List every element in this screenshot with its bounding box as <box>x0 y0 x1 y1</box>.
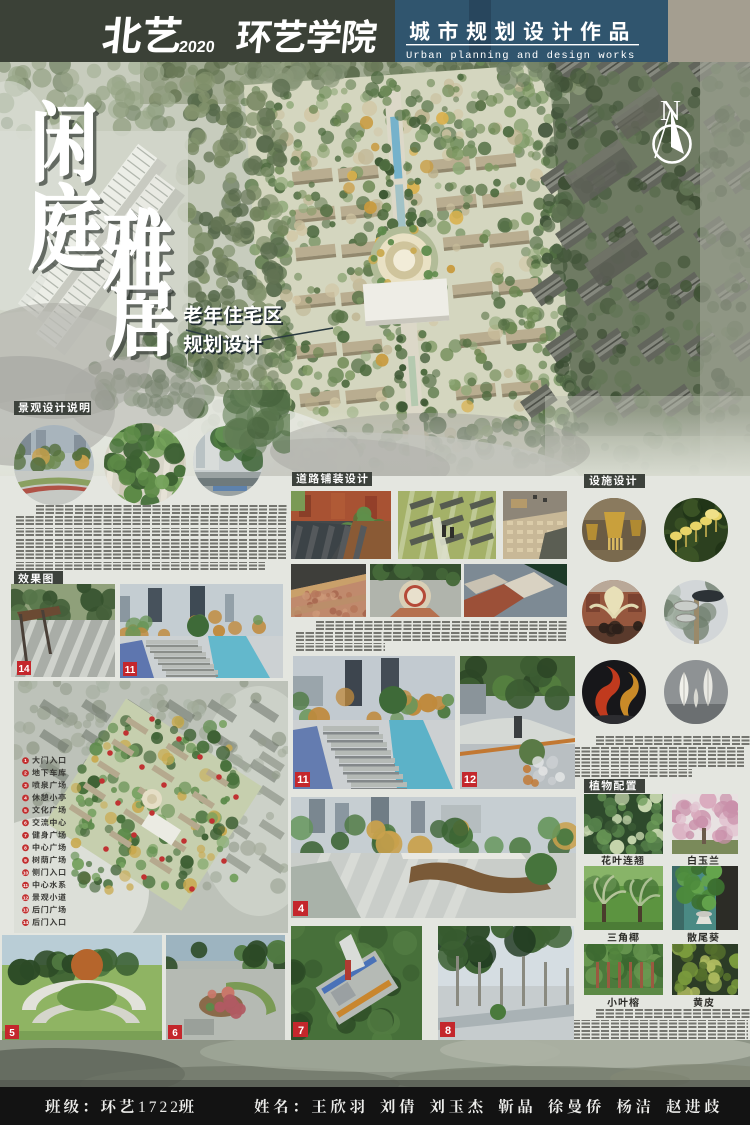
svg-text:1722: 1722 <box>138 1099 181 1116</box>
